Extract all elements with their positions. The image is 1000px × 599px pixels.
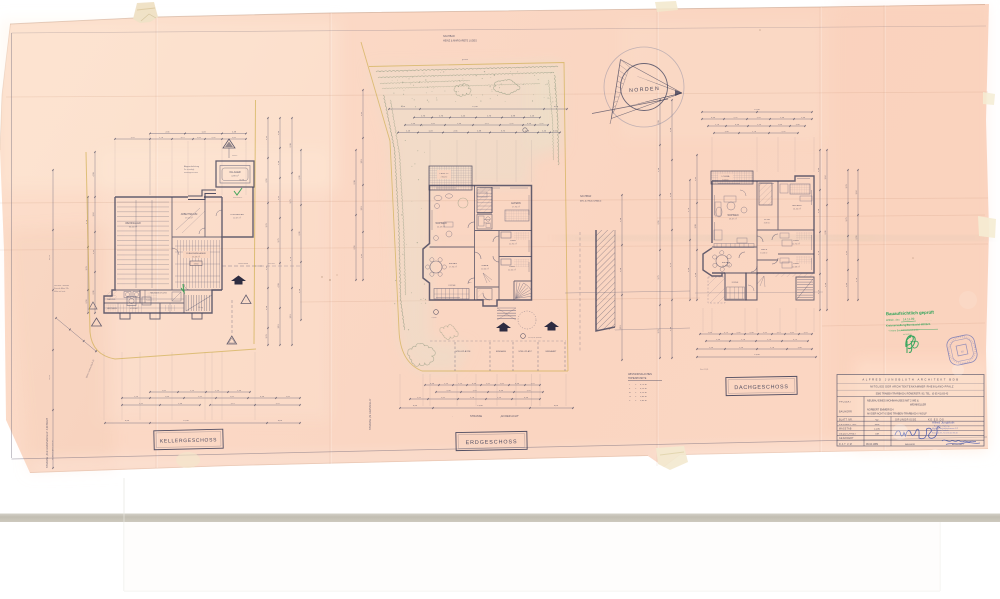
svg-text:EINFAHRT: EINFAHRT [546,350,557,353]
svg-text:ABSTANDSFLÄCHEN: ABSTANDSFLÄCHEN [628,373,652,376]
svg-text:ERL & INGE ERBES: ERL & INGE ERBES [580,201,602,203]
svg-text:6/89: 6/89 [875,424,880,426]
svg-text:STRASSE „ZUR GRANNENFELD“ 4,00: STRASSE „ZUR GRANNENFELD“ 4,00 BREIT [46,417,49,468]
svg-text:14,54 m²: 14,54 m² [793,208,801,211]
svg-text:17,96 m²: 17,96 m² [449,266,457,269]
svg-text:First 11,81: First 11,81 [700,368,708,371]
svg-text:NEUBAU EINES WOHNHAUSES MI: NEUBAU EINES WOHNHAUSES MIT 2 WE & [867,399,919,402]
svg-text:18,00: 18,00 [49,374,51,380]
svg-text:WOHNEN: WOHNEN [436,222,447,225]
svg-text:13,26 m²: 13,26 m² [760,251,768,254]
svg-text:Wittlich, den: Wittlich, den [886,319,900,322]
svg-text:KÜCHE: KÜCHE [732,281,739,284]
svg-text:12,92 m²: 12,92 m² [509,243,517,246]
svg-text:4,10 m: 4,10 m [640,388,647,390]
svg-text:5580 TRABEN-TRARBACH, RÖMERSTR: 5580 TRABEN-TRARBACH, RÖMERSTR. 83, TEL.… [876,392,949,395]
svg-text:KÜCHE: KÜCHE [448,284,456,287]
svg-text:ELTERN: ELTERN [511,202,521,205]
svg-text:1:350: 1:350 [193,264,199,266]
svg-text:GRUNDRISSE: GRUNDRISSE [895,418,917,421]
svg-text:DIELE: DIELE [761,249,768,251]
svg-text:NACHBAR: NACHBAR [443,35,455,38]
svg-text:3,98 m²: 3,98 m² [764,221,771,224]
svg-text:STRASSE „IM GRANNFELD“: STRASSE „IM GRANNFELD“ [369,398,372,430]
svg-text:Nachbarl. Gelände: Nachbarl. Gelände [54,285,69,287]
svg-text:14.11.89: 14.11.89 [903,317,915,322]
svg-text:3x standsgl.: 3x standsgl. [184,168,195,171]
svg-text:·: · [452,414,453,418]
svg-text:– 0,28: – 0,28 [431,317,436,319]
svg-text:2,Tw.O.: 2,Tw.O. [110,295,116,297]
svg-text:STELLPLÄTZE: STELLPLÄTZE [456,350,471,353]
svg-text:PROJEKT: PROJEKT [839,402,852,404]
svg-text:19,11 m²: 19,11 m² [185,217,193,220]
svg-text:nebengeschoss: nebengeschoss [184,172,198,174]
svg-text:MASSTAB: MASSTAB [839,428,852,431]
svg-text:ARBEITSRAUM: ARBEITSRAUM [181,213,198,216]
svg-text:ERDGESCHOSS: ERDGESCHOSS [466,439,518,446]
svg-text:GM: GM [875,433,879,435]
svg-text:-01-: -01- [875,419,879,421]
svg-text:grenze: grenze [462,59,469,61]
svg-text:einlauf: einlauf [232,155,238,157]
svg-text:12,72 m²: 12,72 m² [792,243,800,246]
svg-text:HEINZ & MARGARETE LUDES: HEINZ & MARGARETE LUDES [443,40,477,43]
svg-text:m. Rw 26 geh. 2,00 m: m. Rw 26 geh. 2,00 m [52,440,54,460]
svg-text:12,00: 12,00 [472,106,478,108]
svg-text:WEINKELLER: WEINKELLER [125,222,141,225]
svg-text:HÖHENPUNKTE: HÖHENPUNKTE [628,377,647,380]
svg-text:FLUR: FLUR [764,219,770,221]
svg-text:EINGANG: EINGANG [496,350,506,353]
svg-text:Hausanschl.: Hausanschl. [233,197,243,199]
svg-text:NACHBAR: NACHBAR [580,195,592,198]
svg-text:KIND: KIND [510,240,516,242]
svg-text:+/- 0,0 = 3,28 m: +/- 0,0 = 3,28 m [528,337,542,339]
svg-text:. . . . . .: . . . . . . [925,319,932,321]
svg-text:ELTERN: ELTERN [793,205,802,207]
svg-text:4,10 m: 4,10 m [640,392,647,394]
svg-text:10,67 m²: 10,67 m² [233,217,241,220]
svg-text:FLUR: FLUR [484,219,490,221]
svg-text:12,00: 12,00 [183,420,189,422]
svg-text:28,67 m²: 28,67 m² [729,218,737,221]
svg-text:3173L: 3173L [239,180,245,182]
svg-text:BAUHERR: BAUHERR [839,411,852,414]
svg-text:MITGLIED DER ARCHITEKTENKAMMER: MITGLIED DER ARCHITEKTENKAMMER RHEINLAND… [870,385,954,389]
svg-text:29,49 m²: 29,49 m² [192,255,200,258]
svg-text:ALFRED JUNGBLUTH ARCHITEKT: ALFRED JUNGBLUTH ARCHITEKT BDB [862,378,959,382]
svg-text:4,98 m²: 4,98 m² [231,175,239,178]
svg-text:14 stg: 14 stg [198,306,203,309]
svg-text:ESSEN: ESSEN [449,263,457,265]
svg-text:STELLPLATZ: STELLPLATZ [518,350,532,353]
svg-text:VORKELLER: VORKELLER [230,214,244,216]
svg-text:4,70 m: 4,70 m [640,384,647,386]
svg-text:WASCHK.: WASCHK. [107,298,116,301]
svg-text:7,84/2m²: 7,84/2m² [440,176,447,179]
svg-text:Rasenb. Allee 22b: Rasenb. Allee 22b [54,287,69,290]
svg-text:BAUHERR: BAUHERR [905,443,916,446]
svg-text:06.04.1989: 06.04.1989 [866,443,879,446]
svg-text:Nachbar: Nachbar [268,263,275,265]
svg-text:WEINKELLER: WEINKELLER [910,404,926,407]
svg-text:KIND: KIND [793,240,799,242]
svg-text:Abgasrohrleitung: Abgasrohrleitung [184,165,199,168]
svg-text:NORBERT EMMERICH: NORBERT EMMERICH [867,408,894,411]
svg-text:13,00: 13,00 [477,405,483,407]
svg-text:GEÄNDERT: GEÄNDERT [839,437,854,440]
svg-text:Römerstr. 83 - Tel. 0 65 41 /: Römerstr. 83 - Tel. 0 65 41 / 83 43 [932,432,958,435]
svg-text:„AN DER ACHT“: „AN DER ACHT“ [500,414,519,418]
svg-text:34,11 m²: 34,11 m² [129,226,137,229]
svg-text:3,80 m: 3,80 m [640,396,647,398]
svg-text:42,50: 42,50 [49,254,51,260]
svg-text:12,00: 12,00 [754,109,760,111]
svg-text:Grenz-Wand: Grenz-Wand [238,263,248,265]
svg-text:PERG 5:1: PERG 5:1 [439,173,449,175]
svg-text:DACHGESCHOSS: DACHGESCHOSS [734,384,788,391]
svg-text:LOGGIA: LOGGIA [722,175,730,178]
svg-text:FLASCHENLAGER: FLASCHENLAGER [186,252,206,255]
svg-text:DIELE: DIELE [482,265,489,267]
svg-text:BLATT NR.: BLATT NR. [839,418,853,421]
svg-text:1:100: 1:100 [874,429,880,431]
svg-text:WOHNEN: WOHNEN [728,214,739,217]
svg-text:WC: WC [468,282,472,284]
svg-text:AN DER ACHT 6 5580 TRABEN-T: AN DER ACHT 6 5580 TRABEN-TRARBACH / WOL… [867,413,927,416]
svg-text:3,90 m²: 3,90 m² [484,222,491,225]
svg-text:D A T U M: D A T U M [839,443,852,446]
svg-text:12,02 m²: 12,02 m² [508,269,516,272]
svg-text:STRASSE: STRASSE [470,414,482,418]
svg-text:10,68 m²: 10,68 m² [792,266,800,269]
svg-text:ÖLLAGER: ÖLLAGER [229,171,241,174]
svg-text:3,80 m: 3,80 m [640,400,647,402]
svg-text:10,04 m²: 10,04 m² [481,268,489,271]
svg-text:17,90 m²: 17,90 m² [512,206,520,209]
svg-text:13,00: 13,00 [754,354,760,356]
svg-text:Hühe auf zust.: Hühe auf zust. [54,290,66,293]
svg-text:Alfred Jungbluth: Alfred Jungbluth [932,421,955,425]
